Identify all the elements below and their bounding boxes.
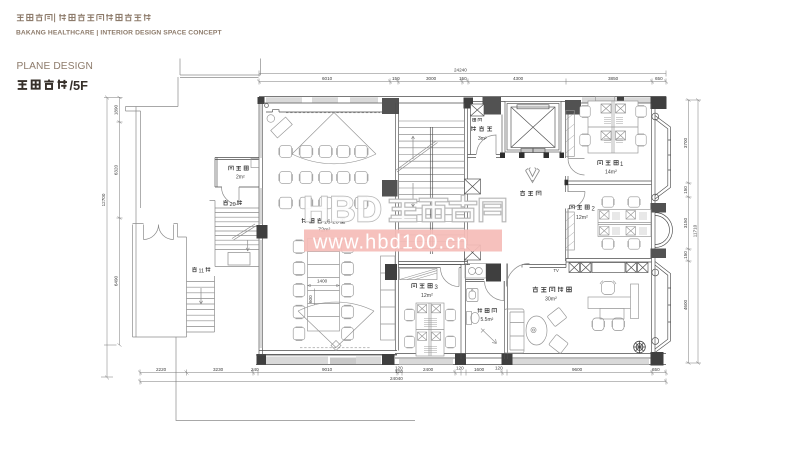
- svg-text:2220: 2220: [156, 367, 167, 372]
- svg-text:12700: 12700: [101, 193, 106, 206]
- svg-text:9010: 9010: [322, 367, 333, 372]
- svg-text:1400: 1400: [317, 279, 328, 284]
- svg-text:4300: 4300: [513, 76, 524, 81]
- svg-text:6490: 6490: [114, 275, 119, 286]
- svg-text:4600: 4600: [683, 299, 688, 310]
- svg-text:1600: 1600: [474, 367, 485, 372]
- svg-text:3000: 3000: [426, 76, 437, 81]
- svg-text:150: 150: [392, 76, 400, 81]
- svg-text:HBD: HBD: [303, 189, 382, 230]
- svg-text:12m²: 12m²: [421, 293, 433, 299]
- svg-text:5.5m²: 5.5m²: [481, 317, 494, 323]
- svg-text:650: 650: [655, 76, 663, 81]
- svg-text:11710: 11710: [693, 224, 698, 237]
- svg-text:www.hbd100.cn: www.hbd100.cn: [312, 232, 469, 254]
- svg-text:12m²: 12m²: [576, 215, 588, 221]
- svg-text:3150: 3150: [683, 217, 688, 228]
- svg-text:TV: TV: [554, 268, 560, 273]
- svg-text:BAKANG HEALTHCARE | INTERIOR D: BAKANG HEALTHCARE | INTERIOR DESIGN SPAC…: [16, 30, 222, 37]
- svg-text:3700: 3700: [683, 137, 688, 148]
- svg-text:3m²: 3m²: [478, 136, 487, 142]
- svg-text:24040: 24040: [390, 376, 403, 381]
- svg-text:30m²: 30m²: [545, 297, 557, 303]
- svg-text:120: 120: [456, 366, 464, 371]
- svg-text:650: 650: [652, 367, 660, 372]
- svg-text:150: 150: [683, 186, 688, 194]
- svg-text:11: 11: [199, 269, 205, 275]
- svg-text:6320: 6320: [114, 164, 119, 175]
- svg-text:14m²: 14m²: [605, 170, 617, 176]
- svg-text:6010: 6010: [322, 76, 333, 81]
- svg-text:240: 240: [251, 367, 259, 372]
- svg-text:9600: 9600: [572, 367, 583, 372]
- svg-text:150: 150: [459, 76, 467, 81]
- svg-text:3230: 3230: [213, 367, 224, 372]
- svg-text:150: 150: [683, 251, 688, 259]
- svg-text:2m²: 2m²: [236, 175, 245, 181]
- svg-text:2400: 2400: [423, 367, 434, 372]
- svg-text:600: 600: [308, 295, 313, 303]
- svg-text:24240: 24240: [454, 68, 467, 73]
- svg-text:120: 120: [495, 366, 503, 371]
- svg-text:/5F: /5F: [70, 78, 89, 93]
- svg-text:1890: 1890: [114, 104, 119, 115]
- svg-text:120: 120: [395, 369, 403, 374]
- svg-text:3850: 3850: [608, 76, 619, 81]
- svg-text:PLANE DESIGN: PLANE DESIGN: [17, 61, 94, 72]
